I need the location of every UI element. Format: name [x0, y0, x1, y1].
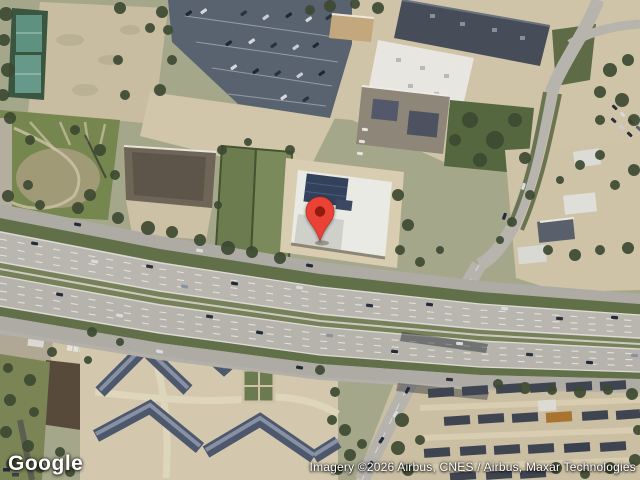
- pin-body: [306, 197, 334, 241]
- location-marker-pin[interactable]: [303, 195, 337, 243]
- google-logo[interactable]: Google: [8, 452, 83, 476]
- map-container[interactable]: Google Imagery ©2026 Airbus, CNES / Airb…: [0, 0, 640, 480]
- imagery-attribution: Imagery ©2026 Airbus, CNES / Airbus, Max…: [310, 460, 636, 474]
- tennis-courts: [8, 8, 48, 100]
- pin-inner-dot: [315, 206, 325, 216]
- park-green: [0, 110, 120, 220]
- office-building: [124, 146, 216, 240]
